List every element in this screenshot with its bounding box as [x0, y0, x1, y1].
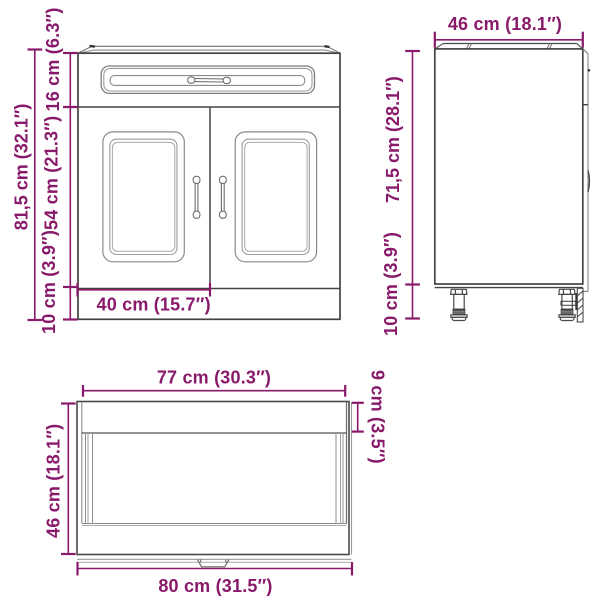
svg-text:46 cm (18.1″): 46 cm (18.1″)	[44, 424, 64, 538]
svg-text:16 cm (6.3″): 16 cm (6.3″)	[43, 7, 63, 111]
svg-text:71,5 cm (28.1″): 71,5 cm (28.1″)	[383, 76, 403, 203]
svg-text:9 cm (3.5″): 9 cm (3.5″)	[368, 370, 388, 464]
svg-text:77 cm (30.3″): 77 cm (30.3″)	[157, 368, 271, 388]
svg-text:40 cm (15.7″): 40 cm (15.7″)	[97, 295, 211, 315]
svg-text:10 cm (3.9″): 10 cm (3.9″)	[39, 230, 59, 334]
svg-text:46 cm (18.1″): 46 cm (18.1″)	[448, 14, 562, 34]
svg-text:54 cm (21.3″): 54 cm (21.3″)	[42, 116, 62, 230]
svg-text:81,5 cm (32.1″): 81,5 cm (32.1″)	[12, 104, 32, 231]
svg-text:80 cm (31.5″): 80 cm (31.5″)	[158, 576, 272, 596]
svg-text:10 cm (3.9″): 10 cm (3.9″)	[381, 232, 401, 336]
